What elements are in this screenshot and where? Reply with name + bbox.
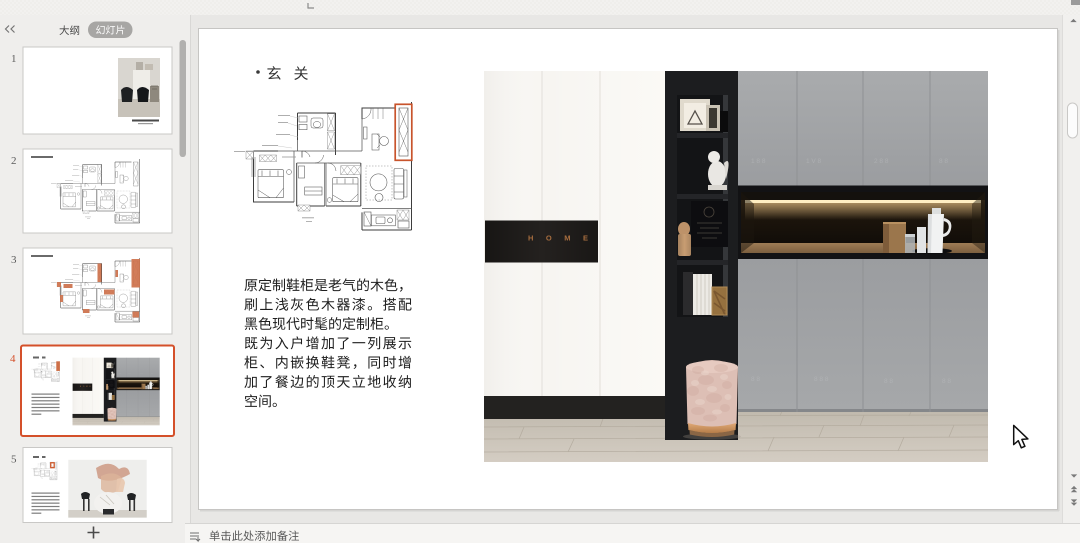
svg-text:3: 3 [11,254,17,266]
svg-text:4: 4 [10,353,16,365]
svg-text:1: 1 [11,53,17,65]
svg-text:2: 2 [11,155,17,167]
svg-text:5: 5 [11,454,17,466]
